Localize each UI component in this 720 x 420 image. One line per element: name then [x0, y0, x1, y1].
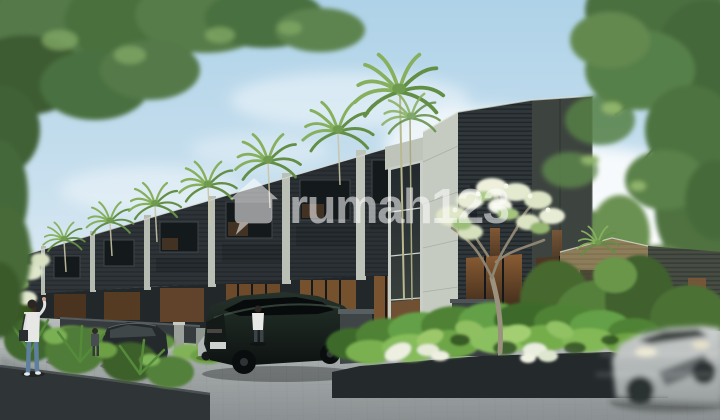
scene-svg [0, 0, 720, 420]
license-plate [210, 342, 226, 349]
architectural-render: rumah123 [0, 0, 720, 420]
shoulder-bag [19, 330, 28, 341]
glass-facade [388, 160, 423, 338]
